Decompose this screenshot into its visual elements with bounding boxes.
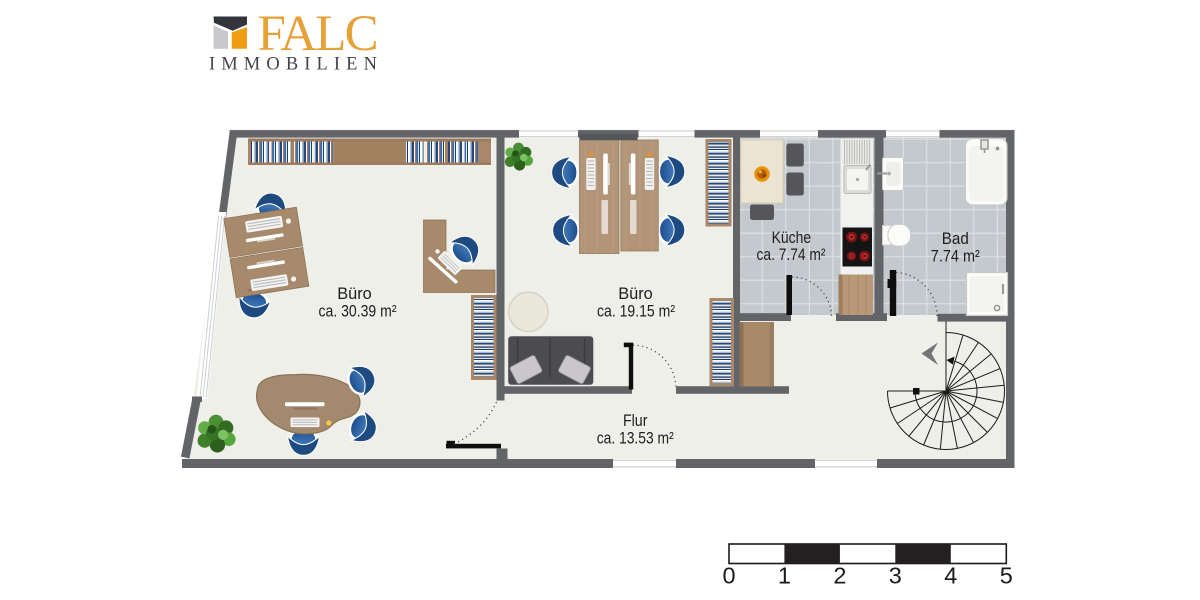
svg-text:Büro: Büro <box>337 284 372 303</box>
svg-text:ca. 13.53 m²: ca. 13.53 m² <box>597 429 674 448</box>
svg-text:ca. 7.74 m²: ca. 7.74 m² <box>757 245 826 264</box>
svg-text:Büro: Büro <box>618 284 653 303</box>
svg-text:Flur: Flur <box>623 411 648 430</box>
svg-text:2: 2 <box>833 563 846 589</box>
svg-text:4: 4 <box>944 563 957 589</box>
svg-text:3: 3 <box>889 563 902 589</box>
svg-text:Bad: Bad <box>942 229 969 248</box>
svg-text:ca. 19.15 m²: ca. 19.15 m² <box>597 302 675 321</box>
svg-text:1: 1 <box>778 563 791 589</box>
svg-text:IMMOBILIEN: IMMOBILIEN <box>209 55 383 75</box>
svg-text:7.74 m²: 7.74 m² <box>931 247 980 266</box>
svg-text:0: 0 <box>722 563 735 589</box>
svg-text:ca. 30.39 m²: ca. 30.39 m² <box>319 302 397 321</box>
svg-text:5: 5 <box>1000 563 1013 589</box>
